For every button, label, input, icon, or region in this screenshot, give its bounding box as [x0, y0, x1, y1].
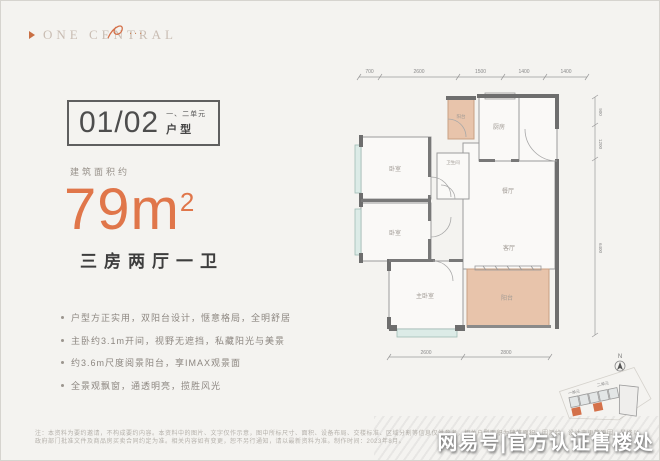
highlighted-unit-1 [571, 407, 581, 417]
north-label: N [618, 354, 622, 360]
area-superscript: 2 [180, 187, 195, 217]
dim-right-3: 6400 [598, 243, 603, 254]
feature-item: 全景观飘窗，通透明亮，揽胜风光 [61, 379, 291, 392]
label-bedroom1: 卧室 [389, 165, 401, 173]
dim-bottom-1: 2600 [420, 350, 431, 356]
label-living: 客厅 [503, 244, 515, 252]
feature-text: 主卧约3.1m开间，视野无遮挡，私藏阳光与美景 [71, 334, 285, 347]
bullet-dot-icon [61, 339, 64, 342]
north-arrow-icon [617, 362, 623, 370]
feature-item: 主卧约3.1m开间，视野无遮挡，私藏阳光与美景 [61, 334, 291, 347]
dim-top-2: 2600 [413, 69, 424, 75]
feature-item: 户型方正实用，双阳台设计，惬意格局，全明舒居 [61, 311, 291, 324]
dimension-line-right [592, 95, 598, 337]
feature-list: 户型方正实用，双阳台设计，惬意格局，全明舒居 主卧约3.1m开间，视野无遮挡，私… [61, 311, 291, 401]
feature-text: 全景观飘窗，通透明亮，揽胜风光 [71, 379, 221, 392]
feature-text: 户型方正实用，双阳台设计，惬意格局，全明舒居 [71, 311, 291, 324]
dim-top-4: 1400 [518, 69, 529, 75]
unit-badge: 01/02 一、二单元 户型 [67, 100, 220, 146]
watermark: 网易号|官方认证售楼处 [437, 426, 654, 455]
unit-note-line2: 户型 [166, 121, 206, 137]
brand-logo: ONE CENTRAL [29, 27, 177, 43]
dim-top-3: 1500 [475, 69, 486, 75]
layout-title: 三房两厅一卫 [80, 247, 224, 272]
dim-top-1: 700 [365, 69, 374, 75]
dim-right-2: 1200 [598, 139, 603, 150]
dim-right-1: 900 [598, 108, 603, 116]
unit-number: 01/02 [79, 105, 159, 141]
label-balcony-top: 阳台 [457, 113, 466, 120]
feature-text: 约3.6m尺度阅景阳台，享IMAX观景面 [71, 356, 241, 369]
label-bedroom2: 卧室 [389, 229, 401, 237]
dimension-line-bottom [387, 354, 552, 360]
bullet-dot-icon [61, 361, 64, 364]
floorplan-drawing: 700 2600 1500 1400 1400 [345, 67, 620, 367]
logo-flourish-icon [105, 22, 129, 42]
area-number: 79m [64, 177, 180, 242]
unit-note-line1: 一、二单元 [166, 109, 206, 119]
logo-triangle-icon [29, 31, 35, 39]
highlighted-unit-2 [593, 402, 603, 412]
feature-item: 约3.6m尺度阅景阳台，享IMAX观景面 [61, 356, 291, 369]
label-master-bedroom: 主卧室 [416, 292, 434, 300]
label-balcony-bottom: 阳台 [501, 294, 513, 302]
bullet-dot-icon [61, 316, 64, 319]
area-value: 79m2 [64, 171, 195, 241]
label-dining: 餐厅 [502, 187, 514, 195]
site-unit2-label: 二单元 [596, 379, 609, 387]
logo-dots: ... [129, 25, 144, 37]
dim-bottom-2: 2800 [500, 350, 511, 356]
bullet-dot-icon [61, 384, 64, 387]
dimension-line-top [357, 74, 589, 80]
label-kitchen: 厨房 [493, 123, 505, 131]
dim-top-5: 1400 [560, 69, 571, 75]
unit-note: 一、二单元 户型 [166, 109, 206, 137]
floorplan-poster: ONE CENTRAL ... 01/02 一、二单元 户型 建筑面积约 79m… [0, 0, 660, 461]
label-bathroom: 卫生间 [446, 159, 460, 166]
